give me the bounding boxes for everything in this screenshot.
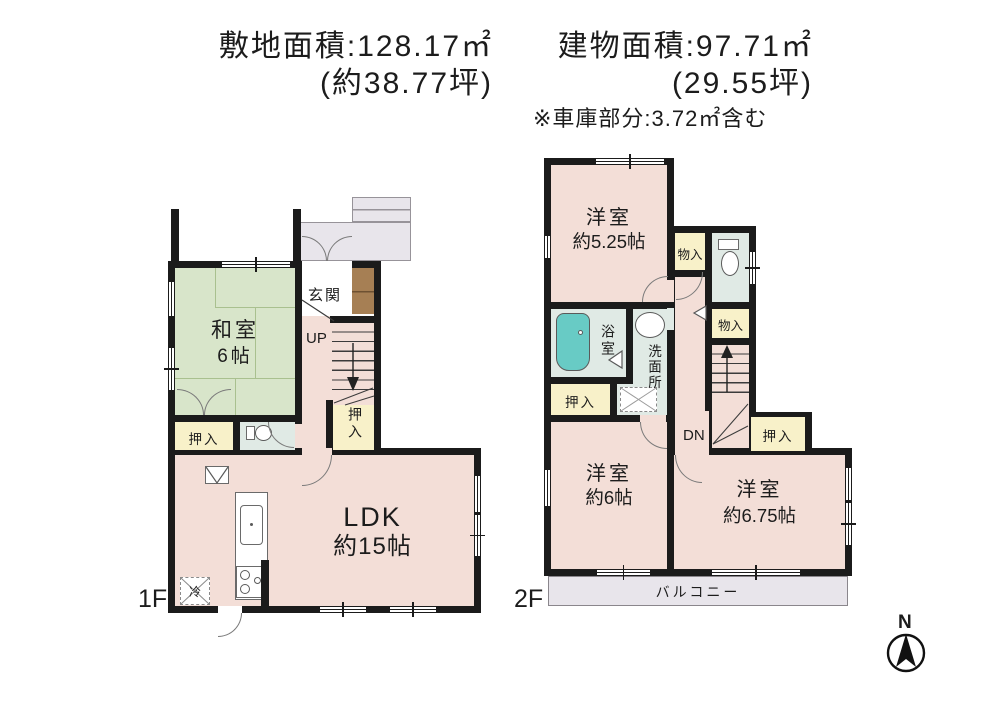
window bbox=[168, 282, 175, 316]
monoire-mid-label: 物入 bbox=[712, 315, 749, 334]
up-label: UP bbox=[306, 330, 327, 347]
tatami-line bbox=[235, 378, 236, 415]
yoshitsu6-name: 洋室 bbox=[551, 462, 667, 486]
building-area-block: 建物面積:97.71㎡ (29.55坪) bbox=[528, 28, 813, 102]
floor2-label: 2F bbox=[514, 585, 543, 614]
range-hood-icon bbox=[205, 466, 229, 484]
window bbox=[845, 503, 852, 545]
window bbox=[749, 252, 756, 284]
oshiire-left-2f-label: 押入 bbox=[551, 391, 610, 411]
wall bbox=[233, 415, 240, 450]
compass-circle bbox=[888, 635, 924, 671]
wall bbox=[293, 209, 301, 265]
stairs-2f bbox=[712, 345, 749, 403]
monoire-top-label: 物入 bbox=[675, 244, 705, 263]
oshiire-hall-label: 押入 bbox=[345, 407, 365, 441]
site-area-block: 敷地面積:128.17㎡ (約38.77坪) bbox=[203, 28, 493, 102]
window bbox=[168, 348, 175, 390]
wall bbox=[330, 316, 374, 323]
burner-icon bbox=[240, 570, 250, 580]
floorplan-page: 敷地面積:128.17㎡ (約38.77坪) 建物面積:97.71㎡ (29.5… bbox=[0, 0, 1000, 707]
toilet-tank-icon bbox=[246, 426, 255, 440]
stairs-2f-winder bbox=[712, 400, 749, 448]
window bbox=[544, 470, 551, 506]
shoe-cabinet bbox=[352, 268, 374, 314]
door-arc-ldk-exterior bbox=[218, 613, 242, 637]
washitsu-label: 和室 6帖 bbox=[175, 318, 295, 370]
window bbox=[222, 261, 290, 268]
window bbox=[597, 569, 650, 576]
floor1-label: 1F bbox=[138, 585, 167, 614]
stairs-1f bbox=[332, 323, 374, 390]
yokushitsu-label: 浴室 bbox=[598, 324, 618, 358]
wall-kitchen-stub bbox=[261, 560, 269, 606]
window bbox=[544, 236, 551, 258]
door-gap-yoshitsu6 bbox=[640, 415, 666, 422]
door-gap-senmenjo bbox=[667, 308, 674, 330]
yoshitsu675-label: 洋室 約6.75帖 bbox=[674, 478, 845, 528]
window bbox=[390, 606, 436, 613]
yoshitsu525-label: 洋室 約5.25帖 bbox=[551, 206, 667, 254]
toilet-tank-icon bbox=[718, 239, 739, 250]
door-gap-ldk-exterior bbox=[218, 606, 242, 613]
tatami-line bbox=[215, 268, 216, 307]
garage-note-text: ※車庫部分:3.72㎡含む bbox=[533, 101, 767, 133]
door-gap-ldk bbox=[302, 448, 332, 455]
building-area-tsubo-text: (29.55坪) bbox=[528, 65, 813, 102]
senmenjo-label: 洗面所 bbox=[643, 344, 663, 391]
burner-icon bbox=[254, 577, 261, 584]
site-area-tsubo-text: (約38.77坪) bbox=[203, 65, 493, 102]
compass-north-label: N bbox=[898, 612, 912, 634]
oshiire-right-2f-label: 押入 bbox=[751, 425, 805, 445]
door-gap-yoshitsu675 bbox=[676, 448, 702, 455]
window bbox=[474, 515, 481, 556]
building-area-text: 建物面積:97.71㎡ bbox=[528, 28, 813, 65]
yoshitsu6-size: 約6帖 bbox=[551, 486, 667, 510]
door-gap-525 bbox=[667, 280, 674, 302]
dn-label: DN bbox=[683, 427, 705, 444]
fridge-label: 冷 bbox=[189, 583, 201, 600]
wall bbox=[326, 400, 333, 450]
window bbox=[712, 569, 800, 576]
yoshitsu525-size: 約5.25帖 bbox=[551, 230, 667, 254]
window bbox=[845, 468, 852, 500]
door-gap-toilet bbox=[295, 424, 302, 448]
window bbox=[474, 476, 481, 512]
bathtub-drain-dot bbox=[578, 330, 583, 335]
yoshitsu6-label: 洋室 約6帖 bbox=[551, 462, 667, 510]
yoshitsu675-size: 約6.75帖 bbox=[674, 503, 845, 528]
genkan-label: 玄関 bbox=[308, 284, 342, 305]
door-gap-entrance bbox=[302, 261, 352, 268]
site-area-text: 敷地面積:128.17㎡ bbox=[203, 28, 493, 65]
bathtub-icon bbox=[556, 313, 590, 371]
ldk-size: 約15帖 bbox=[270, 532, 475, 561]
ldk-label: LDK 約15帖 bbox=[270, 503, 475, 561]
yoshitsu675-name: 洋室 bbox=[674, 478, 845, 503]
washbasin-icon bbox=[635, 312, 665, 338]
burner-icon bbox=[240, 584, 250, 594]
sink-drain-dot bbox=[250, 523, 253, 526]
balcony-label: バルコニー bbox=[548, 582, 848, 602]
wall bbox=[171, 209, 179, 265]
ldk-name: LDK bbox=[270, 503, 475, 532]
window bbox=[596, 158, 664, 165]
compass-north-arrow bbox=[896, 634, 916, 667]
window bbox=[320, 606, 366, 613]
washitsu-name: 和室 bbox=[175, 318, 295, 344]
washitsu-size: 6帖 bbox=[175, 344, 295, 370]
oshiire-left-label: 押入 bbox=[175, 428, 233, 448]
entrance-steps bbox=[352, 197, 411, 222]
yoshitsu525-name: 洋室 bbox=[551, 206, 667, 230]
toilet-bowl-icon bbox=[721, 251, 739, 276]
